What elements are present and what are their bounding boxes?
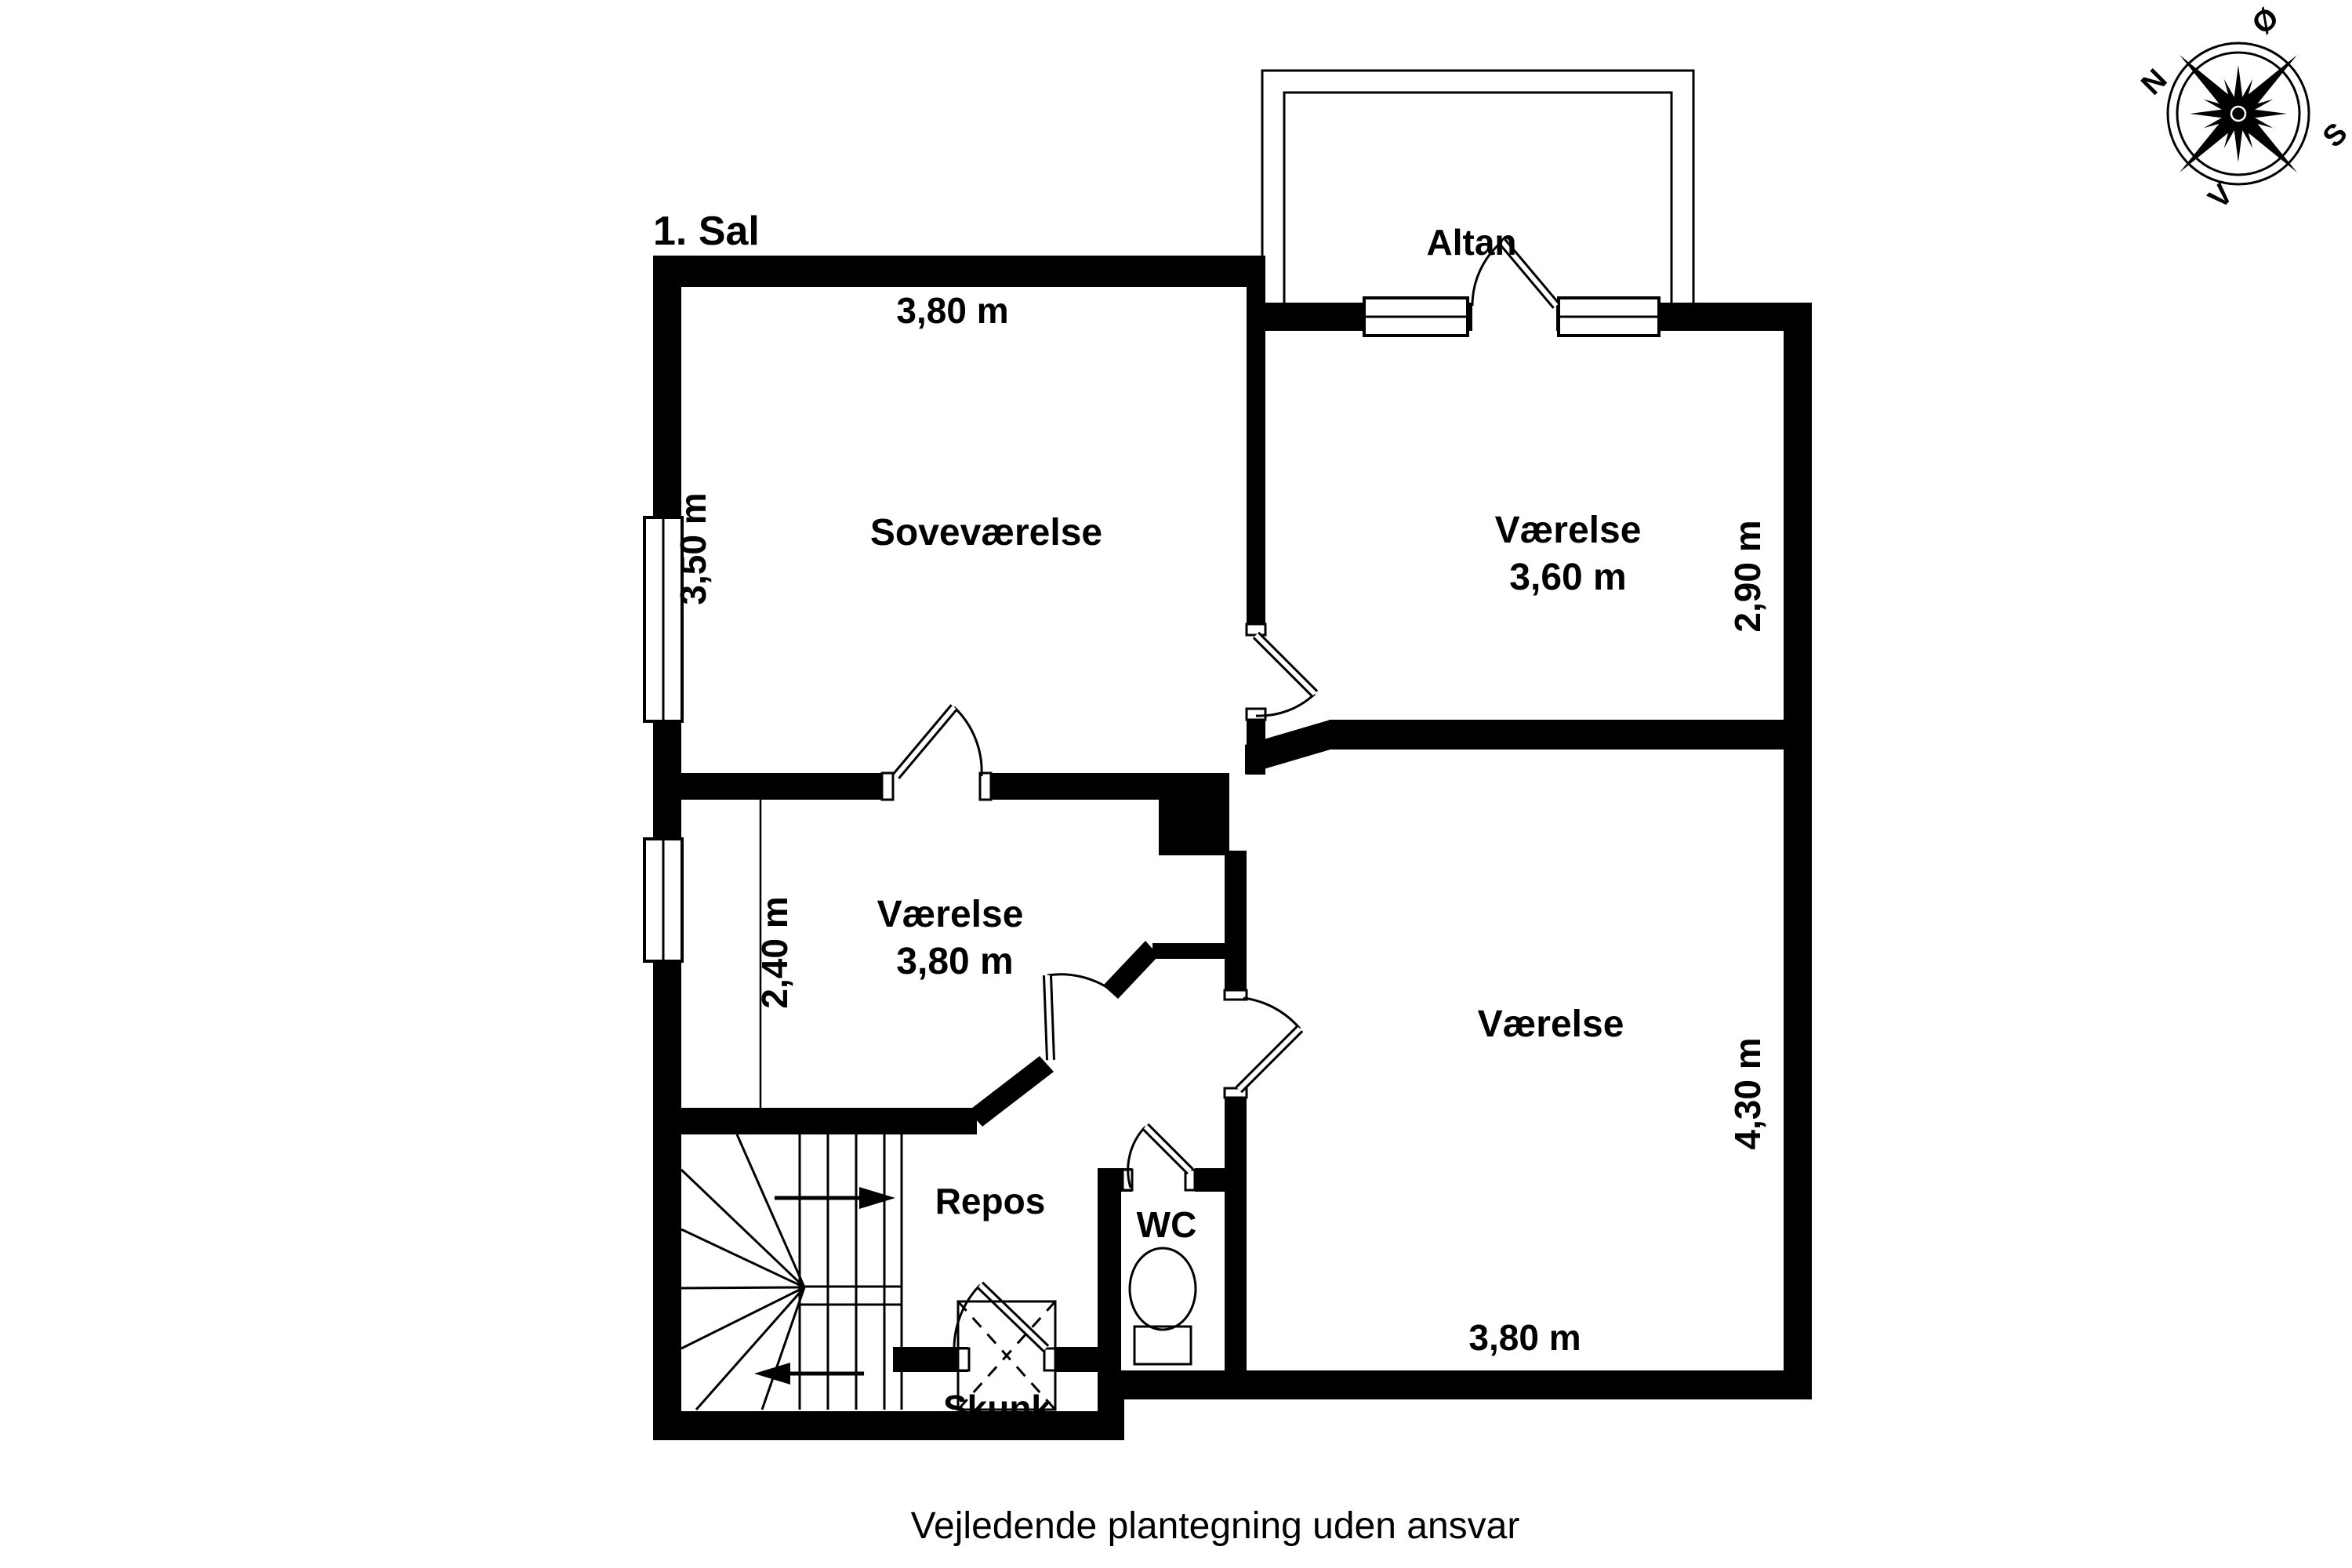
dim-ne-height: 2,90 m [1727, 520, 1768, 632]
wall-wc-left [1098, 1168, 1121, 1372]
dim-mid-width: 3,80 m [896, 941, 1013, 982]
jamb [980, 773, 991, 800]
compass-label-south: S [2317, 117, 2352, 154]
wall-right-outer [1784, 303, 1812, 1399]
wall-diagonal-lower [968, 1056, 1054, 1127]
floor-title: 1. Sal [653, 209, 760, 254]
dim-se-width: 3,80 m [1468, 1317, 1581, 1358]
jamb [1044, 1348, 1055, 1370]
sovevaerelse-door [896, 707, 982, 776]
plan-caption: Vejledende plantegning uden ansvar [911, 1505, 1520, 1547]
winder-line [696, 1287, 804, 1410]
winder-line [681, 1287, 804, 1288]
compass-rose: N Ø S V [2121, 0, 2352, 231]
jamb [1247, 709, 1265, 720]
wall-hall-stub [1152, 943, 1229, 959]
dim-ne-width: 3,60 m [1509, 557, 1626, 598]
wall-hall-vertical-lower [1225, 1090, 1247, 1372]
room-label-vaerelse-se: Værelse [1478, 1004, 1624, 1045]
sove-door-opening [891, 770, 982, 803]
room-label-sovevaerelse: Soveværelse [870, 512, 1102, 554]
altan-door-opening [1472, 299, 1556, 334]
floorplan-canvas: N Ø S V 1. Sal Altan 3,80 m 3,50 m Sovev… [0, 0, 2352, 1568]
altan-outline [1262, 71, 1693, 306]
jamb [1247, 624, 1265, 635]
door-swing-arc [1243, 998, 1300, 1029]
jamb [958, 1348, 969, 1370]
door-swing-arc [954, 707, 982, 776]
staircase [681, 1134, 902, 1410]
dim-sove-height: 3,50 m [673, 492, 713, 604]
wall-top-left [653, 256, 1265, 287]
wall-bottom-left [653, 1411, 1124, 1440]
altan-outer-wall [1262, 71, 1693, 306]
jamb [882, 773, 893, 800]
dim-sove-width: 3,80 m [896, 290, 1008, 331]
wall-divider-bedrooms-upper [1247, 256, 1265, 635]
wall-diagonal-upper [1103, 941, 1159, 999]
room-label-vaerelse-ne: Værelse [1495, 510, 1642, 551]
wall-divider-right-rooms [1329, 720, 1784, 750]
vaerelse-mid-door [1047, 975, 1110, 1060]
winder-line [737, 1134, 804, 1287]
wall-hall-block [1159, 785, 1229, 855]
wall-hall-vertical-upper [1225, 851, 1247, 1000]
dim-se-height: 4,30 m [1727, 1037, 1768, 1149]
arrow-up-head [859, 1187, 895, 1209]
vaerelse-ne-door [1256, 635, 1315, 716]
compass-label-north: N [2135, 63, 2173, 101]
room-label-altan: Altan [1427, 222, 1517, 263]
winder-line [681, 1170, 804, 1287]
wall-wc-top-right [1195, 1168, 1225, 1192]
room-label-repos: Repos [935, 1181, 1046, 1221]
windows [644, 298, 1659, 961]
jamb [1225, 990, 1247, 1000]
compass-hub-ring [2231, 107, 2245, 121]
wall-midroom-stairs-divider [679, 1108, 977, 1134]
room-label-vaerelse-mid: Værelse [877, 894, 1024, 935]
vaerelse-se-door [1239, 998, 1300, 1090]
wall-bottom-right [1098, 1370, 1812, 1399]
room-label-skunk: Skunk [943, 1388, 1051, 1428]
wc-door [1128, 1127, 1190, 1188]
wall-repos-skunk-right [1055, 1347, 1101, 1372]
toilet-bowl [1130, 1248, 1196, 1330]
room-label-wc: WC [1137, 1204, 1197, 1245]
dim-mid-height: 2,40 m [754, 896, 795, 1008]
winder-line [681, 1229, 804, 1287]
toilet [1130, 1248, 1196, 1364]
door-jambs [882, 624, 1265, 1370]
skunk-door [954, 1285, 1046, 1348]
labels: 1. Sal Altan 3,80 m 3,50 m Soveværelse V… [653, 209, 1768, 1547]
compass-label-east: Ø [2246, 2, 2286, 42]
door-swing-arc [1047, 975, 1110, 989]
toilet-tank [1134, 1327, 1191, 1364]
